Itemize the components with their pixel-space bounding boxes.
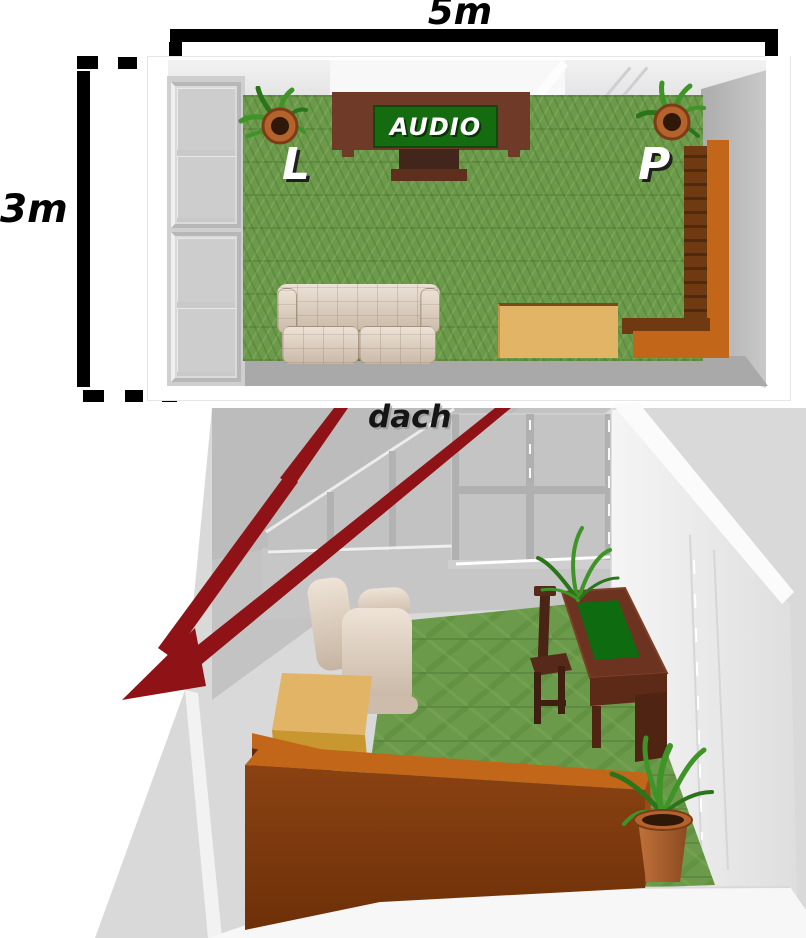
desk-drawer-unit bbox=[635, 692, 667, 762]
room-planner-render: 5m 3m bbox=[0, 0, 806, 938]
sofa-cushion bbox=[359, 326, 436, 364]
perspective-view bbox=[90, 400, 806, 938]
plan-right-wall-outer bbox=[766, 56, 790, 390]
speaker-right-label: P bbox=[638, 143, 670, 187]
window bbox=[171, 232, 241, 382]
window-pane bbox=[177, 308, 235, 372]
audio-cabinet-foot bbox=[342, 149, 354, 157]
dimension-depth-dash bbox=[77, 56, 98, 69]
roof-label: dach bbox=[368, 402, 452, 433]
audio-sign: AUDIO bbox=[373, 105, 498, 148]
tv-table-base bbox=[391, 169, 467, 181]
corner-sofa-back-vertical bbox=[707, 140, 729, 355]
chair-leg bbox=[534, 672, 541, 724]
plant-pot-soil bbox=[271, 117, 289, 135]
desk-leg bbox=[592, 706, 601, 748]
potted-plant-top-right bbox=[636, 80, 710, 144]
corner-sofa-seat-vertical bbox=[684, 146, 708, 326]
window-pane bbox=[177, 156, 235, 218]
dimension-depth-label: 3m bbox=[0, 190, 68, 229]
chair-stretcher bbox=[540, 700, 566, 706]
audio-sign-label: AUDIO bbox=[390, 113, 481, 141]
sofa-cushion bbox=[282, 326, 359, 364]
window-pane bbox=[177, 238, 235, 302]
window-rail bbox=[452, 486, 612, 494]
corner-sofa-back-horizontal bbox=[633, 331, 729, 358]
low-cabinet-top bbox=[272, 673, 372, 735]
sofa-backrest bbox=[277, 284, 440, 330]
window-pane bbox=[177, 88, 235, 150]
chair-leg bbox=[558, 666, 565, 714]
window bbox=[171, 82, 241, 228]
low-cabinet bbox=[498, 303, 618, 358]
plant-pot-soil bbox=[663, 113, 681, 131]
audio-cabinet-foot bbox=[508, 149, 520, 157]
plan-top-wall-highlight bbox=[330, 60, 565, 96]
dimension-width-label: 5m bbox=[400, 0, 520, 30]
sofa bbox=[277, 282, 440, 365]
speaker-left-label: L bbox=[282, 143, 310, 187]
plant-pot-soil bbox=[642, 814, 684, 826]
plan-window-wall bbox=[167, 76, 245, 386]
dimension-depth-line bbox=[77, 71, 90, 387]
dimension-depth-dash bbox=[118, 57, 137, 69]
